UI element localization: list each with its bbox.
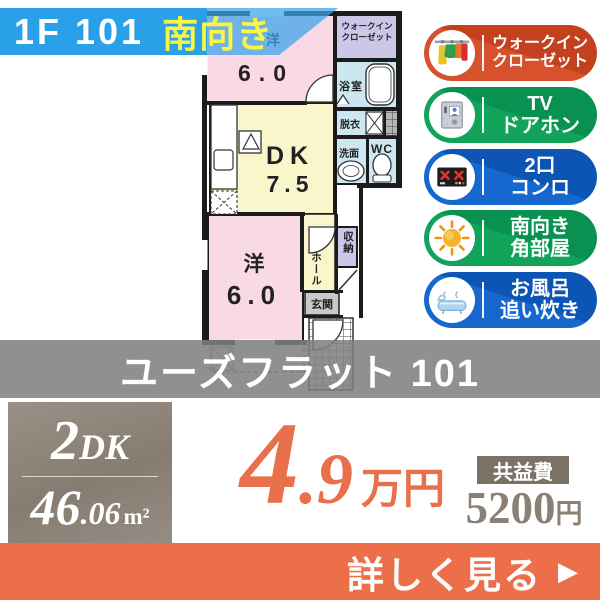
facing-direction: 南向き <box>162 6 273 58</box>
badge-divider <box>482 97 484 133</box>
badge-label: お風呂 追い炊き <box>489 278 597 322</box>
closet-icon <box>429 30 475 76</box>
spec-box: 2 DK 46 .06 m² <box>8 402 172 543</box>
badge-label: ウォークイン クローゼット <box>489 35 597 70</box>
room-label-entrance: 玄関 <box>311 296 333 312</box>
room-size-west2: 6.0 <box>227 280 281 311</box>
badge-divider <box>482 159 484 195</box>
arrow-right-icon: ▶ <box>558 556 578 587</box>
layout-type: 2 DK <box>51 413 129 469</box>
spec-divider <box>22 476 158 477</box>
feature-badge-tv-doorphone: TV ドアホン <box>424 87 597 143</box>
badge-label: 2口 コンロ <box>489 155 597 199</box>
property-name-band: ユーズフラット 101 <box>0 340 600 398</box>
stove-icon <box>429 154 475 200</box>
badge-label: TV ドアホン <box>489 93 597 137</box>
feature-badge-bath-reheat: お風呂 追い炊き <box>424 272 597 328</box>
room-label-dk: DK <box>266 142 314 171</box>
room-size-dk: 7.5 <box>267 171 314 198</box>
room-label-wc: WC <box>371 142 393 156</box>
property-name: ユーズフラット 101 <box>120 342 480 397</box>
listing-card: 洋 6.0 ウォークイン クローゼット 浴室 脱衣 洗面 WC DK 7.5 洋… <box>0 0 600 600</box>
feature-badge-south-corner: 南向き 角部屋 <box>424 210 597 266</box>
details-button-label: 詳しく見る <box>347 545 542 599</box>
feature-badge-two-burner-stove: 2口 コンロ <box>424 149 597 205</box>
rent: 4 .9 万円 <box>215 399 470 541</box>
room-size-west1: 6.0 <box>238 60 294 87</box>
room-label-storage: 収納 <box>341 231 356 254</box>
fee-value: 5200円 <box>458 486 590 531</box>
feature-badge-walkin-closet: ウォークイン クローゼット <box>424 25 597 81</box>
badge-divider <box>482 35 484 71</box>
unit-banner: 1F 101 南向き <box>0 8 340 55</box>
doorphone-icon <box>429 92 475 138</box>
sun-icon <box>429 215 475 261</box>
room-label-west2: 洋 <box>244 248 265 278</box>
badge-divider <box>482 220 484 256</box>
room-label-washroom: 洗面 <box>339 145 359 160</box>
room-label-wic: ウォークイン クローゼット <box>338 21 396 43</box>
details-button[interactable]: 詳しく見る ▶ <box>0 543 600 600</box>
room-label-dressing: 脱衣 <box>340 116 360 131</box>
badge-divider <box>482 282 484 318</box>
floor-area: 46 .06 m² <box>30 482 149 532</box>
floor-unit-number: 1F 101 <box>14 11 144 53</box>
badge-label: 南向き 角部屋 <box>489 216 597 260</box>
unit-banner-text: 1F 101 南向き <box>14 8 273 55</box>
fee-label-badge: 共益費 <box>477 456 569 484</box>
bathtub-icon <box>429 277 475 323</box>
room-label-bath: 浴室 <box>339 78 363 94</box>
room-label-hall: ホール <box>309 252 324 287</box>
